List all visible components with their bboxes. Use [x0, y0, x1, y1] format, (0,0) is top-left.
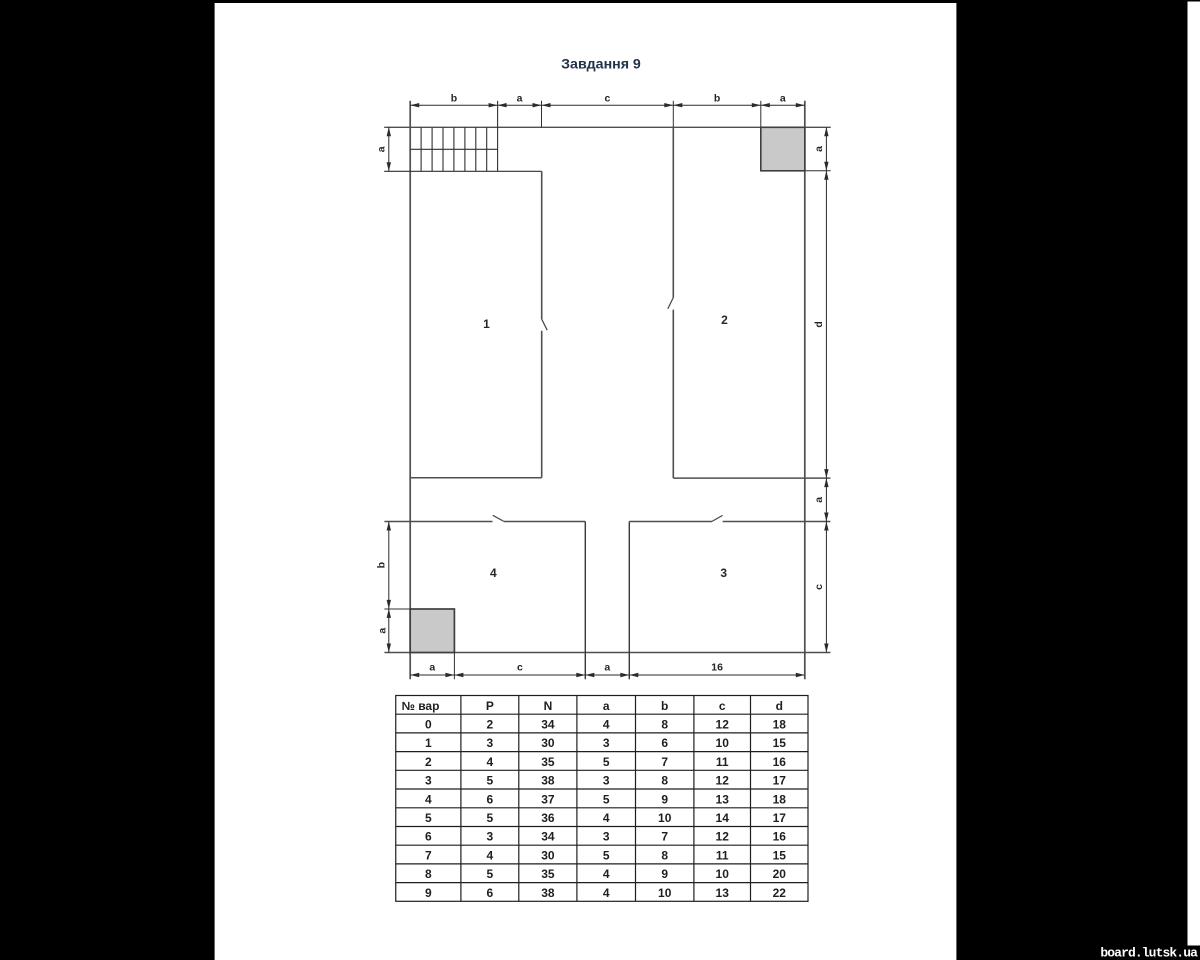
svg-text:18: 18 — [773, 718, 787, 732]
svg-text:P: P — [486, 699, 494, 713]
svg-text:d: d — [813, 321, 825, 327]
svg-text:4: 4 — [487, 848, 494, 862]
svg-text:16: 16 — [773, 755, 787, 769]
svg-text:3: 3 — [603, 830, 610, 844]
svg-text:8: 8 — [425, 867, 432, 881]
svg-text:5: 5 — [603, 792, 610, 806]
svg-text:Завдання 9: Завдання 9 — [561, 57, 641, 73]
svg-text:12: 12 — [716, 774, 730, 788]
svg-text:3: 3 — [720, 566, 727, 580]
svg-text:b: b — [714, 93, 720, 105]
svg-text:3: 3 — [487, 830, 494, 844]
svg-text:board.lutsk.ua: board.lutsk.ua — [1100, 946, 1198, 960]
svg-text:6: 6 — [425, 830, 432, 844]
svg-text:17: 17 — [773, 774, 787, 788]
svg-text:34: 34 — [541, 718, 555, 732]
svg-text:4: 4 — [603, 886, 610, 900]
svg-text:b: b — [376, 562, 388, 568]
svg-text:11: 11 — [716, 848, 729, 862]
svg-text:22: 22 — [773, 886, 787, 900]
svg-text:38: 38 — [541, 774, 555, 788]
svg-text:34: 34 — [541, 830, 555, 844]
svg-text:10: 10 — [658, 886, 672, 900]
svg-text:6: 6 — [661, 736, 668, 750]
svg-text:1: 1 — [483, 317, 490, 331]
svg-text:d: d — [776, 699, 783, 713]
svg-text:5: 5 — [603, 755, 610, 769]
svg-text:14: 14 — [716, 811, 730, 825]
svg-text:8: 8 — [661, 718, 668, 732]
svg-text:6: 6 — [487, 886, 494, 900]
svg-text:7: 7 — [661, 755, 668, 769]
svg-text:c: c — [813, 584, 825, 590]
svg-text:11: 11 — [716, 755, 729, 769]
svg-text:5: 5 — [487, 867, 494, 881]
svg-text:7: 7 — [425, 848, 432, 862]
svg-text:c: c — [517, 662, 523, 674]
svg-text:30: 30 — [541, 736, 555, 750]
svg-text:15: 15 — [773, 848, 787, 862]
svg-text:6: 6 — [487, 792, 494, 806]
svg-text:a: a — [517, 93, 523, 105]
svg-text:9: 9 — [661, 792, 668, 806]
svg-text:b: b — [661, 699, 668, 713]
svg-text:35: 35 — [541, 867, 555, 881]
svg-text:№ вар: № вар — [402, 699, 440, 713]
svg-text:12: 12 — [716, 718, 730, 732]
svg-text:c: c — [604, 93, 610, 105]
svg-text:1: 1 — [425, 736, 432, 750]
svg-text:2: 2 — [721, 313, 728, 327]
svg-text:2: 2 — [487, 718, 494, 732]
svg-text:30: 30 — [541, 848, 555, 862]
svg-text:b: b — [451, 93, 457, 105]
svg-text:13: 13 — [716, 886, 730, 900]
svg-text:13: 13 — [716, 792, 730, 806]
svg-text:0: 0 — [425, 718, 432, 732]
svg-text:a: a — [429, 662, 435, 674]
svg-text:a: a — [377, 628, 389, 634]
svg-text:3: 3 — [487, 736, 494, 750]
svg-text:10: 10 — [716, 867, 730, 881]
svg-text:a: a — [813, 497, 825, 503]
svg-text:7: 7 — [661, 830, 668, 844]
svg-text:N: N — [544, 699, 553, 713]
svg-text:c: c — [719, 699, 726, 713]
svg-text:4: 4 — [603, 867, 610, 881]
svg-text:3: 3 — [425, 774, 432, 788]
svg-text:35: 35 — [541, 755, 555, 769]
svg-text:4: 4 — [603, 718, 610, 732]
svg-text:4: 4 — [425, 792, 432, 806]
svg-text:a: a — [603, 699, 610, 713]
svg-text:10: 10 — [716, 736, 730, 750]
svg-text:5: 5 — [487, 774, 494, 788]
svg-text:a: a — [780, 93, 786, 105]
svg-text:8: 8 — [661, 848, 668, 862]
svg-text:2: 2 — [425, 755, 432, 769]
svg-text:12: 12 — [716, 830, 730, 844]
svg-text:36: 36 — [541, 811, 555, 825]
svg-text:17: 17 — [773, 811, 787, 825]
svg-text:18: 18 — [773, 792, 787, 806]
svg-text:a: a — [376, 146, 388, 152]
svg-text:16: 16 — [773, 830, 787, 844]
svg-text:3: 3 — [603, 736, 610, 750]
svg-text:4: 4 — [490, 566, 497, 580]
svg-text:8: 8 — [661, 774, 668, 788]
svg-text:10: 10 — [658, 811, 672, 825]
svg-text:4: 4 — [603, 811, 610, 825]
svg-text:5: 5 — [487, 811, 494, 825]
svg-text:38: 38 — [541, 886, 555, 900]
svg-text:15: 15 — [773, 736, 787, 750]
svg-text:9: 9 — [425, 886, 432, 900]
svg-text:a: a — [604, 662, 610, 674]
svg-text:4: 4 — [487, 755, 494, 769]
svg-text:9: 9 — [661, 867, 668, 881]
svg-text:a: a — [813, 146, 825, 152]
svg-text:20: 20 — [773, 867, 787, 881]
svg-text:5: 5 — [425, 811, 432, 825]
svg-text:5: 5 — [603, 848, 610, 862]
svg-text:3: 3 — [603, 774, 610, 788]
svg-text:16: 16 — [711, 662, 723, 674]
svg-text:37: 37 — [541, 792, 555, 806]
